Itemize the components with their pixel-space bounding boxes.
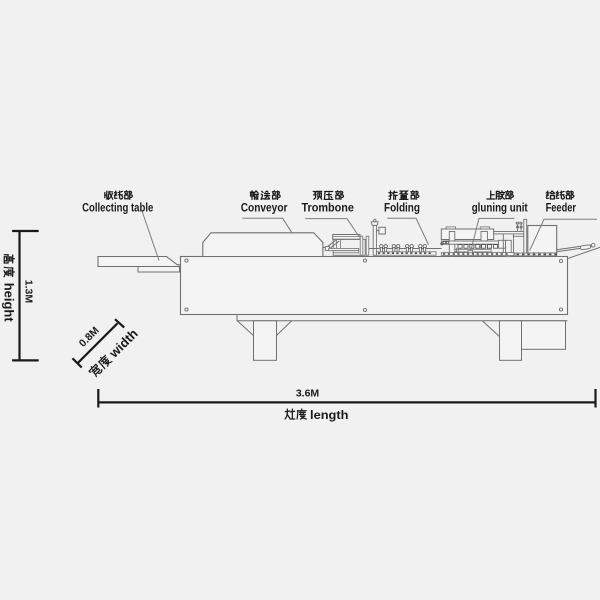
svg-text:Collecting table: Collecting table <box>82 200 153 214</box>
svg-text:gluning unit: gluning unit <box>472 200 528 214</box>
svg-text:Folding: Folding <box>384 200 420 214</box>
svg-text:Feeder: Feeder <box>546 200 577 214</box>
svg-text:Conveyor: Conveyor <box>241 200 288 214</box>
svg-text:length: length <box>310 408 349 422</box>
svg-text:3.6M: 3.6M <box>296 388 320 400</box>
svg-text:1.3M: 1.3M <box>22 280 34 304</box>
svg-text:height: height <box>2 283 17 323</box>
svg-text:Trombone: Trombone <box>301 200 354 214</box>
svg-text:0.8M: 0.8M <box>77 324 102 349</box>
